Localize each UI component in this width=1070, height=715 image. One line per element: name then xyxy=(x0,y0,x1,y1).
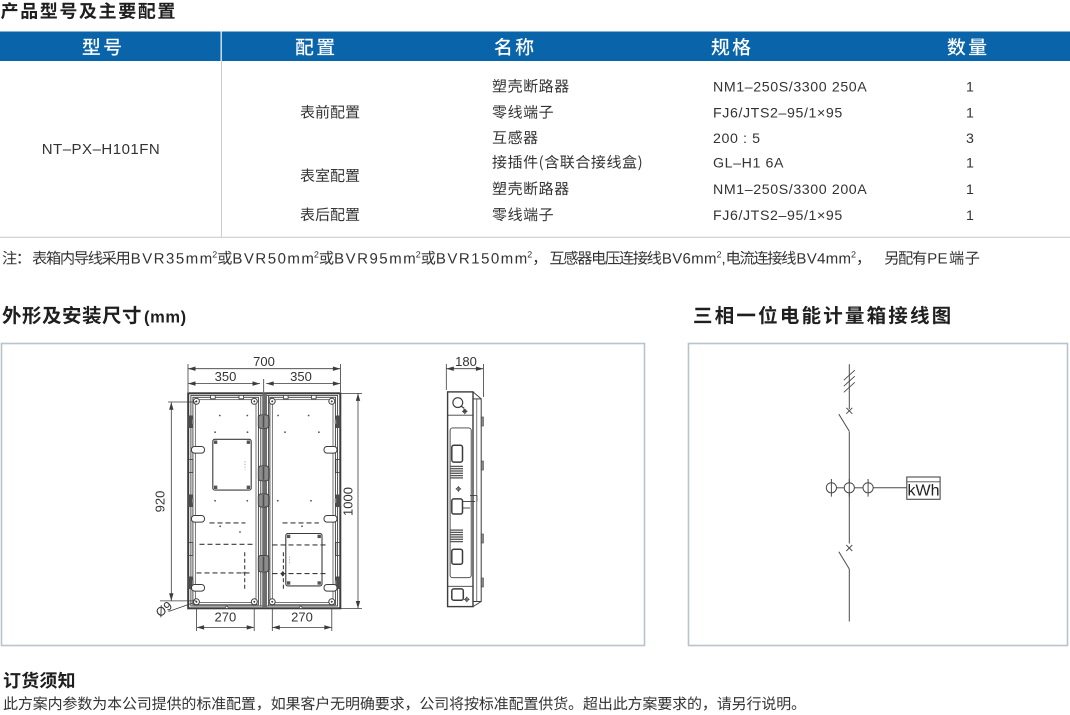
svg-text:270: 270 xyxy=(291,610,313,625)
svg-text:180: 180 xyxy=(455,354,477,369)
svg-text:kWh: kWh xyxy=(908,483,940,500)
svg-text:FJ6/JTS2–95/1×95: FJ6/JTS2–95/1×95 xyxy=(713,208,843,224)
svg-text:3: 3 xyxy=(966,131,974,147)
svg-text:350: 350 xyxy=(290,369,312,384)
svg-text:1000: 1000 xyxy=(341,487,356,516)
svg-text:1: 1 xyxy=(966,182,974,198)
svg-text:270: 270 xyxy=(215,610,237,625)
svg-text:700: 700 xyxy=(253,354,275,369)
svg-text:NT–PX–H101FN: NT–PX–H101FN xyxy=(42,141,161,158)
svg-text:920: 920 xyxy=(153,491,168,513)
svg-text:NM1–250S/3300 200A: NM1–250S/3300 200A xyxy=(713,182,867,198)
svg-text:1: 1 xyxy=(966,156,974,172)
svg-text:FJ6/JTS2–95/1×95: FJ6/JTS2–95/1×95 xyxy=(713,106,843,122)
svg-text:1: 1 xyxy=(966,106,974,122)
svg-text:350: 350 xyxy=(215,369,237,384)
svg-text:1: 1 xyxy=(966,208,974,224)
svg-text:200 : 5: 200 : 5 xyxy=(713,131,761,147)
svg-text:NM1–250S/3300 250A: NM1–250S/3300 250A xyxy=(713,80,867,96)
svg-text:GL–H1 6A: GL–H1 6A xyxy=(713,156,784,172)
svg-text:1: 1 xyxy=(966,80,974,96)
svg-text:(mm): (mm) xyxy=(144,309,187,327)
